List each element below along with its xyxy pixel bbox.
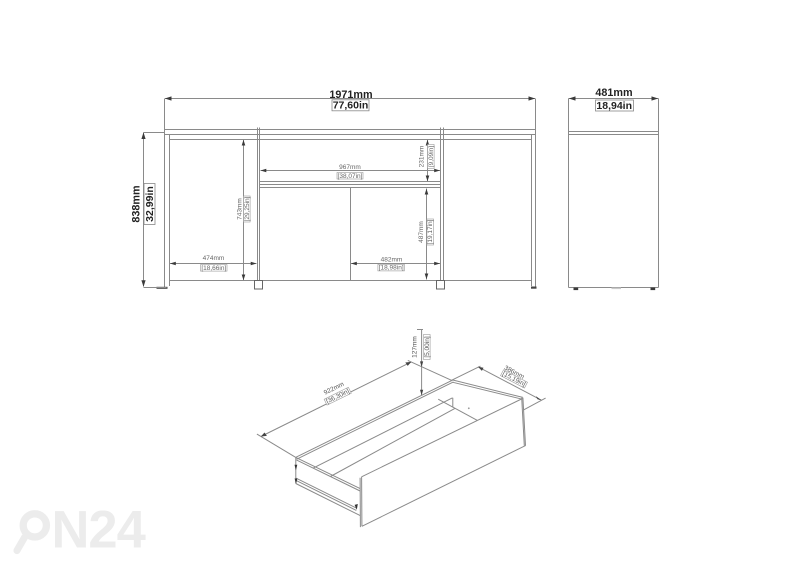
svg-text:127mm: 127mm <box>411 336 418 358</box>
svg-text:N24: N24 <box>52 501 146 560</box>
svg-text:77,60in: 77,60in <box>333 100 369 112</box>
svg-text:[5,00in]: [5,00in] <box>424 336 431 358</box>
svg-text:[18,66in]: [18,66in] <box>201 265 226 272</box>
svg-text:[18,98in]: [18,98in] <box>379 265 404 272</box>
svg-text:474mm: 474mm <box>203 255 225 262</box>
svg-text:487mm: 487mm <box>418 221 425 243</box>
svg-text:[38,07in]: [38,07in] <box>338 173 363 180</box>
svg-text:481mm: 481mm <box>595 87 632 99</box>
svg-text:[9,09in]: [9,09in] <box>428 146 435 168</box>
svg-text:838mm: 838mm <box>131 185 143 222</box>
svg-text:[29,25in]: [29,25in] <box>244 196 251 221</box>
svg-text:18,94in: 18,94in <box>596 100 632 112</box>
svg-text:482mm: 482mm <box>381 256 403 263</box>
svg-text:[19,17in]: [19,17in] <box>427 219 434 244</box>
svg-text:967mm: 967mm <box>339 164 361 171</box>
svg-text:231mm: 231mm <box>419 146 426 168</box>
svg-text:32,99in: 32,99in <box>144 186 156 222</box>
svg-text:743mm: 743mm <box>236 198 243 220</box>
